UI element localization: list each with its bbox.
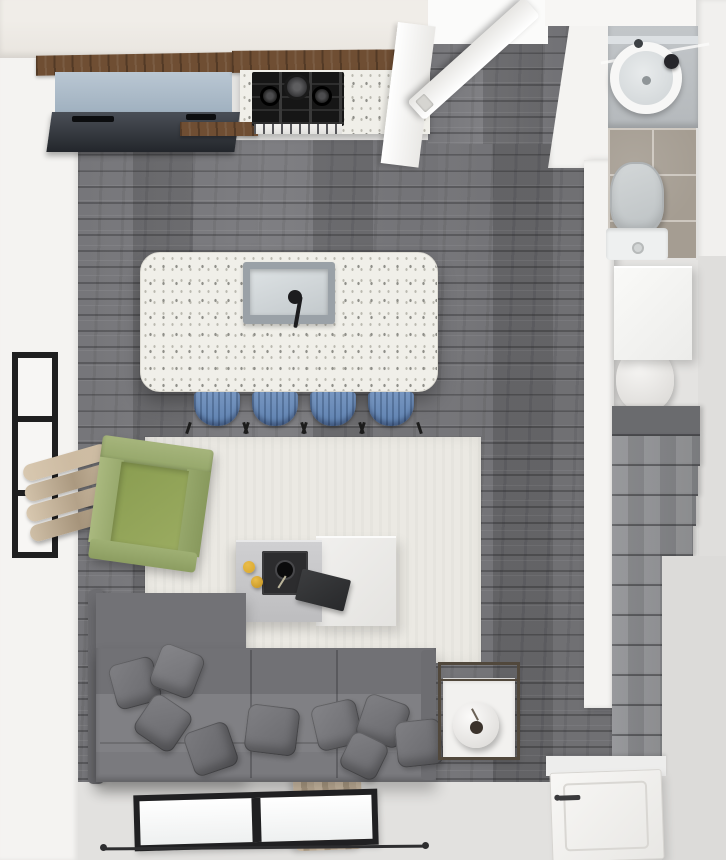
drain — [642, 76, 651, 85]
fruit — [243, 561, 255, 573]
sofa-pillow[interactable] — [243, 703, 300, 757]
fridge-counter-panel — [55, 72, 232, 114]
green-armchair[interactable] — [86, 435, 214, 573]
round-vase — [453, 702, 499, 748]
stair-step — [612, 496, 696, 526]
door-handle[interactable] — [558, 795, 580, 801]
vase-opening — [470, 721, 483, 734]
stove-control-strip — [254, 124, 342, 134]
rod-finial — [100, 844, 107, 851]
burner-right — [312, 86, 332, 106]
mid-right-wall — [698, 256, 726, 558]
stair-step — [612, 526, 693, 556]
gas-cooktop — [252, 72, 344, 126]
soap-dispenser — [634, 39, 643, 48]
stair-step — [612, 436, 700, 466]
sofa-pillow[interactable] — [394, 718, 445, 769]
basin-sink — [610, 42, 682, 114]
stair-step — [612, 406, 700, 436]
stair-step — [612, 706, 667, 736]
toilet-base — [606, 228, 668, 260]
burner-center — [284, 74, 310, 100]
counter-trim-lower — [180, 122, 258, 136]
window-crossbar — [12, 416, 58, 422]
closet-cabinet — [614, 266, 692, 360]
island-faucet[interactable] — [288, 290, 302, 304]
rod-finial — [422, 842, 429, 849]
floorplan-render — [0, 0, 726, 860]
frame-shelf-line — [441, 679, 517, 681]
flush-button[interactable] — [632, 242, 644, 254]
armchair-seat — [110, 462, 188, 551]
vent-slot — [186, 114, 216, 120]
vent-slot — [72, 116, 114, 122]
entry-door[interactable] — [550, 770, 663, 860]
burner-left — [260, 86, 280, 106]
fruit — [251, 576, 263, 588]
door-panel-inset — [563, 781, 649, 852]
door-latch — [415, 93, 434, 112]
toilet — [610, 162, 664, 234]
stair-step — [612, 466, 698, 496]
window-mullion — [251, 798, 261, 842]
vase-twig — [471, 708, 479, 720]
faucet-fixture — [664, 54, 679, 69]
bathroom-right-wall — [696, 0, 726, 260]
bottom-window — [133, 789, 378, 852]
lower-right-wall — [662, 556, 726, 860]
